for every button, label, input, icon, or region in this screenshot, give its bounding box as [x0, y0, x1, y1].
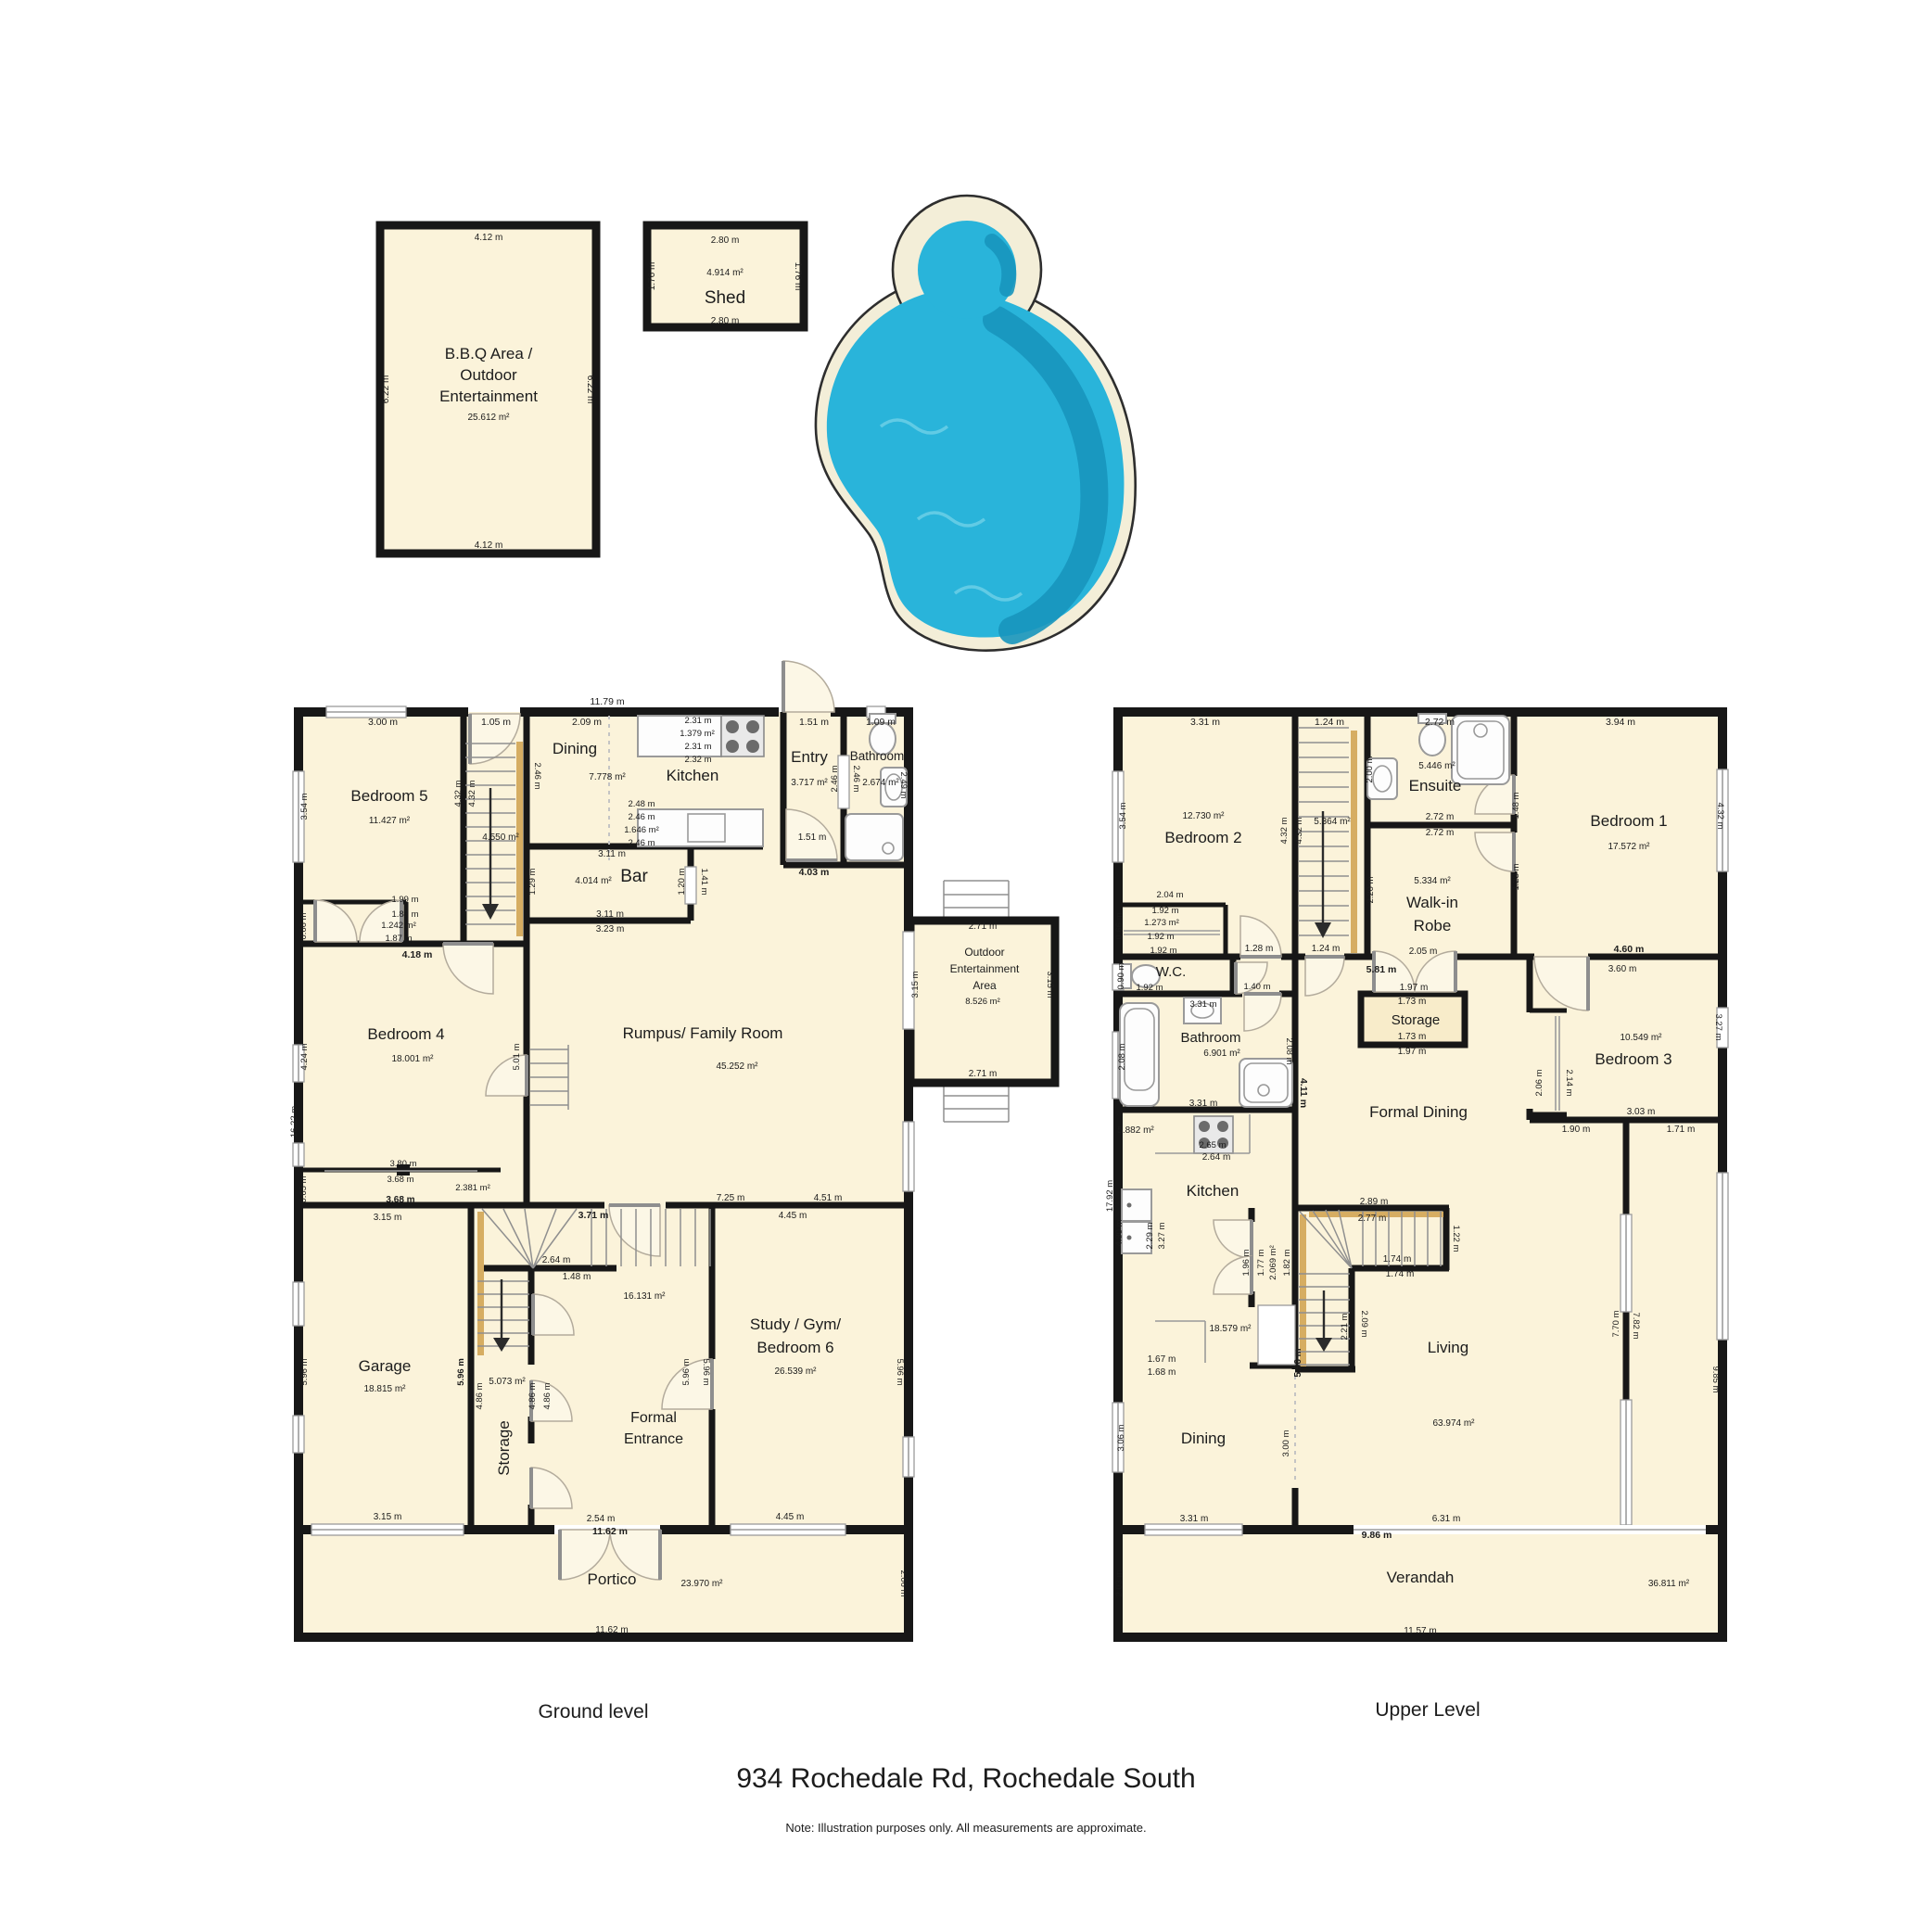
dim-label: 2.71 m	[969, 922, 998, 932]
dim-label: 3.71 m	[578, 1210, 609, 1221]
dim-label: 3.31 m	[1180, 1514, 1209, 1524]
dim-label: 1.24 m	[1315, 717, 1344, 728]
dim-label: 1.24 m	[1312, 944, 1341, 954]
shed-dim-top: 2.80 m	[711, 235, 740, 246]
dim-label: 2.32 m	[684, 755, 711, 765]
dim-label: 45.252 m²	[716, 1061, 758, 1072]
dim-label: 3.11 m	[596, 909, 624, 920]
dim-label: 2.20 m	[1366, 876, 1376, 903]
formal-dining-name: Formal Dining	[1369, 1103, 1468, 1121]
dim-label: 1.96 m	[1241, 1249, 1252, 1276]
dim-label: 11.427 m²	[369, 816, 411, 826]
dim-label: 2.46 m	[830, 765, 840, 792]
dim-label: 3.00 m	[368, 717, 398, 728]
dim-label: 4.24 m	[299, 1043, 310, 1070]
dim-label: 1.23 m	[1511, 863, 1521, 890]
bathroom-ground-name: Bathroom	[850, 749, 905, 763]
dim-label: 5.882 m²	[1117, 1125, 1154, 1136]
kitchen-upper-name: Kitchen	[1187, 1182, 1239, 1200]
dim-label: 1.74 m	[1383, 1254, 1412, 1265]
dim-label: 1.99 m	[391, 895, 418, 905]
dim-label: 11.62 m	[595, 1625, 628, 1635]
dim-label: 1.92 m	[1136, 983, 1163, 993]
dim-label: 3.15 m	[910, 971, 921, 998]
dim-label: 1.82 m	[1282, 1249, 1292, 1276]
bathroom-upper-name: Bathroom	[1180, 1030, 1240, 1046]
upper-level-caption: Upper Level	[1375, 1699, 1480, 1721]
dim-label: 2.31 m	[684, 716, 711, 726]
pool	[816, 196, 1136, 651]
dim-label: 2.06 m	[898, 1570, 909, 1596]
dim-label: 2.54 m	[587, 1514, 616, 1524]
dim-label: 3.31 m	[1189, 1099, 1218, 1109]
dim-label: 2.89 m	[1360, 1197, 1389, 1207]
dim-label: 2.72 m	[1426, 812, 1455, 822]
walkin-robe-name-line1: Walk-in	[1406, 894, 1458, 911]
dim-label: 3.15 m	[1045, 971, 1055, 998]
dim-label: 1.242 m²	[381, 921, 416, 931]
dim-label: 5.364 m²	[1314, 817, 1351, 827]
dim-label: 2.03 m	[1114, 1570, 1125, 1596]
verandah-name: Verandah	[1387, 1569, 1455, 1586]
dim-label: 5.96 m	[701, 1358, 711, 1385]
dim-label: 3.31 m	[1189, 999, 1216, 1010]
dim-label: 2.65 m	[1199, 1140, 1226, 1150]
dim-label: 4.32 m	[1294, 817, 1304, 844]
shower-icon	[1452, 716, 1509, 784]
shed-name: Shed	[705, 288, 745, 308]
dim-label: 17.92 m	[1105, 1180, 1115, 1212]
dim-label: 3.27 m	[1157, 1222, 1167, 1249]
dim-label: 1.41 m	[699, 868, 709, 895]
dim-label: 3.68 m	[386, 1195, 414, 1205]
dim-label: 2.46 m	[628, 838, 655, 848]
dim-label: 1.97 m	[1398, 1047, 1427, 1057]
dim-label: 6.22 m	[381, 375, 391, 404]
bedroom3-name: Bedroom 3	[1595, 1050, 1671, 1068]
dim-label: 3.68 m	[387, 1175, 413, 1185]
dim-label: 6.901 m²	[1203, 1049, 1240, 1059]
dim-label: 16.131 m²	[623, 1291, 666, 1302]
dim-label: 1.71 m	[1667, 1125, 1696, 1135]
captions: Ground level Upper Level 934 Rochedale R…	[538, 1699, 1480, 1835]
dim-label: 1.20 m	[677, 868, 687, 895]
dim-label: 1.09 m	[866, 717, 896, 728]
oea-name-line3: Area	[972, 979, 997, 992]
bbq-name-line3: Entertainment	[439, 388, 538, 405]
dim-label: 1.67 m	[1148, 1354, 1176, 1365]
dim-label: 1.92 m	[1151, 906, 1178, 916]
dim-label: 4.45 m	[779, 1211, 807, 1221]
dim-label: 5.96 m	[681, 1358, 692, 1385]
dim-label: 1.51 m	[798, 833, 827, 843]
portico-name: Portico	[588, 1570, 637, 1588]
dim-label: 2.08 m	[1284, 1037, 1294, 1064]
dim-label: 2.46 m	[628, 812, 655, 822]
dim-label: 2.05 m	[1409, 947, 1438, 957]
ground-level-caption: Ground level	[538, 1701, 648, 1722]
dim-label: 4.11 m	[1298, 1078, 1309, 1108]
formal-entrance-name-line2: Entrance	[624, 1431, 683, 1447]
wc-name: W.C.	[1156, 964, 1187, 980]
dim-label: 5.446 m²	[1418, 761, 1455, 771]
living-name: Living	[1428, 1339, 1468, 1356]
dim-label: 1.51 m	[799, 717, 829, 728]
dining-upper-name: Dining	[1181, 1430, 1226, 1447]
dim-label: 4.32 m	[1279, 817, 1290, 844]
dim-label: 1.28 m	[1245, 944, 1274, 954]
dim-label: 9.86 m	[1362, 1530, 1392, 1541]
bbq-area-value: 25.612 m²	[467, 413, 510, 423]
bbq-dim-bottom: 4.12 m	[475, 540, 503, 551]
dim-label: 1.90 m	[1562, 1125, 1591, 1135]
dim-label: 2.04 m	[1156, 890, 1183, 900]
dim-label: 1.74 m	[1386, 1269, 1415, 1279]
dim-label: 2.08 m	[1117, 1043, 1127, 1070]
dim-label: 1.92 m	[1147, 932, 1174, 942]
dim-label: 2.674 m²	[862, 778, 899, 788]
dim-label: 1.48 m	[563, 1272, 591, 1282]
dim-label: 7.778 m²	[589, 772, 626, 782]
dim-label: 4.32 m	[453, 780, 464, 807]
storage-ground-name: Storage	[495, 1420, 513, 1476]
oea-name-line2: Entertainment	[950, 962, 1020, 975]
bedroom5-name: Bedroom 5	[350, 787, 427, 805]
bedroom1-name: Bedroom 1	[1590, 812, 1667, 830]
dim-label: 7.70 m	[1611, 1310, 1621, 1337]
dim-label: 4.80 m	[1114, 1219, 1125, 1246]
dim-label: 2.069 m²	[1268, 1245, 1278, 1280]
dim-label: 1.29 m	[527, 868, 538, 895]
oea-name-line1: Outdoor	[964, 946, 1004, 959]
dim-label: 4.51 m	[814, 1193, 843, 1203]
dim-label: 12.730 m²	[1182, 811, 1225, 821]
dim-label: 3.54 m	[1118, 802, 1128, 829]
dim-label: 1.77 m	[1256, 1249, 1266, 1276]
dim-label: 3.27 m	[1713, 1013, 1723, 1040]
dim-label: 5.96 m	[456, 1358, 466, 1386]
floorplan-page: 4.12 mB.B.Q Area /OutdoorEntertainment25…	[0, 0, 1932, 1932]
bedroom2-name: Bedroom 2	[1164, 829, 1241, 846]
dim-label: 2.49 m	[898, 771, 909, 798]
dim-label: 1.646 m²	[624, 825, 659, 835]
dim-label: 3.15 m	[374, 1512, 402, 1522]
dim-label: 3.23 m	[596, 924, 625, 934]
dim-label: 3.06 m	[1116, 1424, 1126, 1451]
dim-label: 18.815 m²	[363, 1384, 406, 1394]
dim-label: 2.71 m	[969, 1069, 998, 1079]
dim-label: 63.974 m²	[1432, 1418, 1475, 1429]
dim-label: 1.48 m	[1511, 792, 1521, 819]
walkin-robe-name-line2: Robe	[1414, 917, 1452, 934]
dim-label: 11.62 m	[592, 1526, 628, 1537]
dim-label: 2.06 m	[1534, 1069, 1544, 1096]
study-name-line1: Study / Gym/	[750, 1316, 842, 1333]
bbq-name-line2: Outdoor	[460, 366, 517, 384]
dim-label: 1.68 m	[1148, 1367, 1176, 1378]
dim-label: 0.66 m	[1114, 912, 1125, 939]
dim-label: 11.57 m	[1404, 1626, 1436, 1636]
dim-label: 1.76 m	[793, 262, 803, 291]
dim-label: 4.60 m	[1614, 944, 1645, 955]
dim-label: 3.717 m²	[791, 778, 828, 788]
bar-name: Bar	[620, 867, 648, 886]
dim-label: 4.86 m	[542, 1382, 553, 1409]
dim-label: 3.54 m	[299, 793, 310, 820]
bbq-name-line1: B.B.Q Area /	[445, 345, 533, 362]
dim-label: 2.46 m	[851, 765, 861, 792]
dim-label: 4.32 m	[1715, 802, 1725, 829]
dim-label: 2.48 m	[628, 799, 655, 809]
kitchen-ground-name: Kitchen	[667, 767, 719, 784]
dim-label: 2.09 m	[572, 717, 602, 728]
dim-label: 3.60 m	[1608, 964, 1637, 974]
bathtub-icon	[845, 814, 903, 860]
dim-label: 4.32 m	[467, 780, 477, 807]
dim-label: 10.549 m²	[1620, 1033, 1662, 1043]
dim-label: 3.00 m	[1281, 1430, 1291, 1456]
dim-label: 1.40 m	[1243, 982, 1270, 992]
fridge-icon	[1122, 1189, 1151, 1221]
dim-label: 2.64 m	[542, 1255, 571, 1265]
dim-label: 7.82 m	[1631, 1312, 1641, 1339]
dim-label: 1.379 m²	[680, 729, 715, 739]
dim-label: 2.21 m	[1340, 1313, 1350, 1340]
dim-label: 16.22 m	[289, 1106, 299, 1138]
dim-label: 1.05 m	[481, 717, 511, 728]
storage-upper-name: Storage	[1392, 1012, 1441, 1028]
dim-label: 2.64 m	[1202, 1152, 1231, 1163]
floorplan-canvas: 4.12 mB.B.Q Area /OutdoorEntertainment25…	[0, 0, 1932, 1932]
dim-label: 18.579 m²	[1209, 1324, 1252, 1334]
dim-label: 36.811 m²	[1648, 1579, 1690, 1589]
dim-label: 2.29 m	[1145, 1222, 1155, 1249]
dim-label: 5.81 m	[1366, 964, 1397, 975]
dim-label: 2.46 m	[532, 762, 542, 789]
dim-label: 5.96 m	[895, 1358, 905, 1385]
dim-label: 5.96 m	[299, 1358, 310, 1385]
dim-label: 2.72 m	[1425, 717, 1455, 728]
dim-label: 26.539 m²	[774, 1366, 817, 1377]
dim-label: 7.25 m	[717, 1193, 745, 1203]
dim-label: 5.01 m	[512, 1043, 522, 1070]
dim-label: 5.96 m	[1293, 1348, 1303, 1377]
bbq-dim-top: 4.12 m	[475, 233, 503, 243]
dim-label: 1.273 m²	[1144, 918, 1179, 928]
dim-label: 4.86 m	[527, 1382, 538, 1409]
dim-label: 4.18 m	[402, 949, 433, 960]
shed-area-value: 4.914 m²	[706, 268, 744, 278]
dim-label: 8.526 m²	[965, 997, 1000, 1007]
pantry-void	[1258, 1305, 1295, 1365]
dim-label: 18.001 m²	[391, 1054, 434, 1064]
dim-label: 3.80 m	[389, 1159, 416, 1169]
dim-label: 1.92 m	[1150, 946, 1176, 956]
dim-label: 3.11 m	[598, 849, 626, 859]
dim-label: 1.22 m	[1451, 1225, 1461, 1252]
dim-label: 3.94 m	[1606, 717, 1635, 728]
formal-entrance-name-line1: Formal	[630, 1410, 677, 1426]
dim-label: 17.572 m²	[1608, 842, 1650, 852]
dining-ground-name: Dining	[553, 740, 597, 757]
dim-label: 1.97 m	[1400, 983, 1429, 993]
dim-label: 4.86 m	[475, 1382, 485, 1409]
dim-label: 2.00 m	[1365, 756, 1375, 782]
dim-label: 3.03 m	[1627, 1107, 1656, 1117]
garage-name: Garage	[359, 1357, 412, 1375]
dim-label: 2.14 m	[1564, 1069, 1574, 1096]
dim-label: 4.03 m	[799, 867, 830, 878]
toilet-icon	[1419, 724, 1445, 756]
dim-label: 3.31 m	[1190, 717, 1220, 728]
dim-label: 6.31 m	[1432, 1514, 1461, 1524]
dim-label: 2.77 m	[1358, 1214, 1387, 1224]
dim-label: 5.334 m²	[1414, 876, 1451, 886]
dim-label: 6.22 m	[585, 375, 595, 404]
bedroom4-name: Bedroom 4	[367, 1025, 444, 1043]
dim-label: 2.09 m	[1359, 1310, 1369, 1337]
dim-label: 1.87 m	[385, 934, 412, 944]
dim-label: 0.65 m	[299, 1176, 309, 1202]
entry-name: Entry	[791, 748, 828, 766]
dim-label: 1.76 m	[647, 262, 657, 291]
ensuite-name: Ensuite	[1409, 777, 1462, 794]
dim-label: 5.073 m²	[489, 1377, 526, 1387]
dim-label: 1.73 m	[1398, 997, 1427, 1007]
shed-dim-bottom: 2.80 m	[711, 316, 740, 326]
dim-label: 4.550 m²	[482, 833, 519, 843]
dim-label: 4.45 m	[776, 1512, 805, 1522]
dim-label: 4.014 m²	[575, 876, 612, 886]
dim-label: 23.970 m²	[680, 1579, 723, 1589]
dim-label: 1.87 m	[391, 909, 418, 920]
page-title: 934 Rochedale Rd, Rochedale South	[736, 1763, 1195, 1794]
study-name-line2: Bedroom 6	[756, 1339, 833, 1356]
disclaimer-note: Note: Illustration purposes only. All me…	[785, 1821, 1146, 1835]
dim-label: 9.85 m	[1710, 1366, 1721, 1392]
dim-label: 11.79 m	[590, 696, 624, 707]
dim-label: 2.72 m	[1426, 828, 1455, 838]
rumpus-name: Rumpus/ Family Room	[623, 1024, 783, 1042]
dim-label: 0.66 m	[299, 912, 309, 939]
dim-label: 3.15 m	[374, 1213, 402, 1223]
dim-label: 2.381 m²	[455, 1183, 490, 1193]
dim-label: 0.90 m	[1116, 962, 1126, 989]
dim-label: 1.73 m	[1398, 1032, 1427, 1042]
ground-floor-plan	[293, 661, 1055, 1642]
dim-label: 2.31 m	[684, 742, 711, 752]
